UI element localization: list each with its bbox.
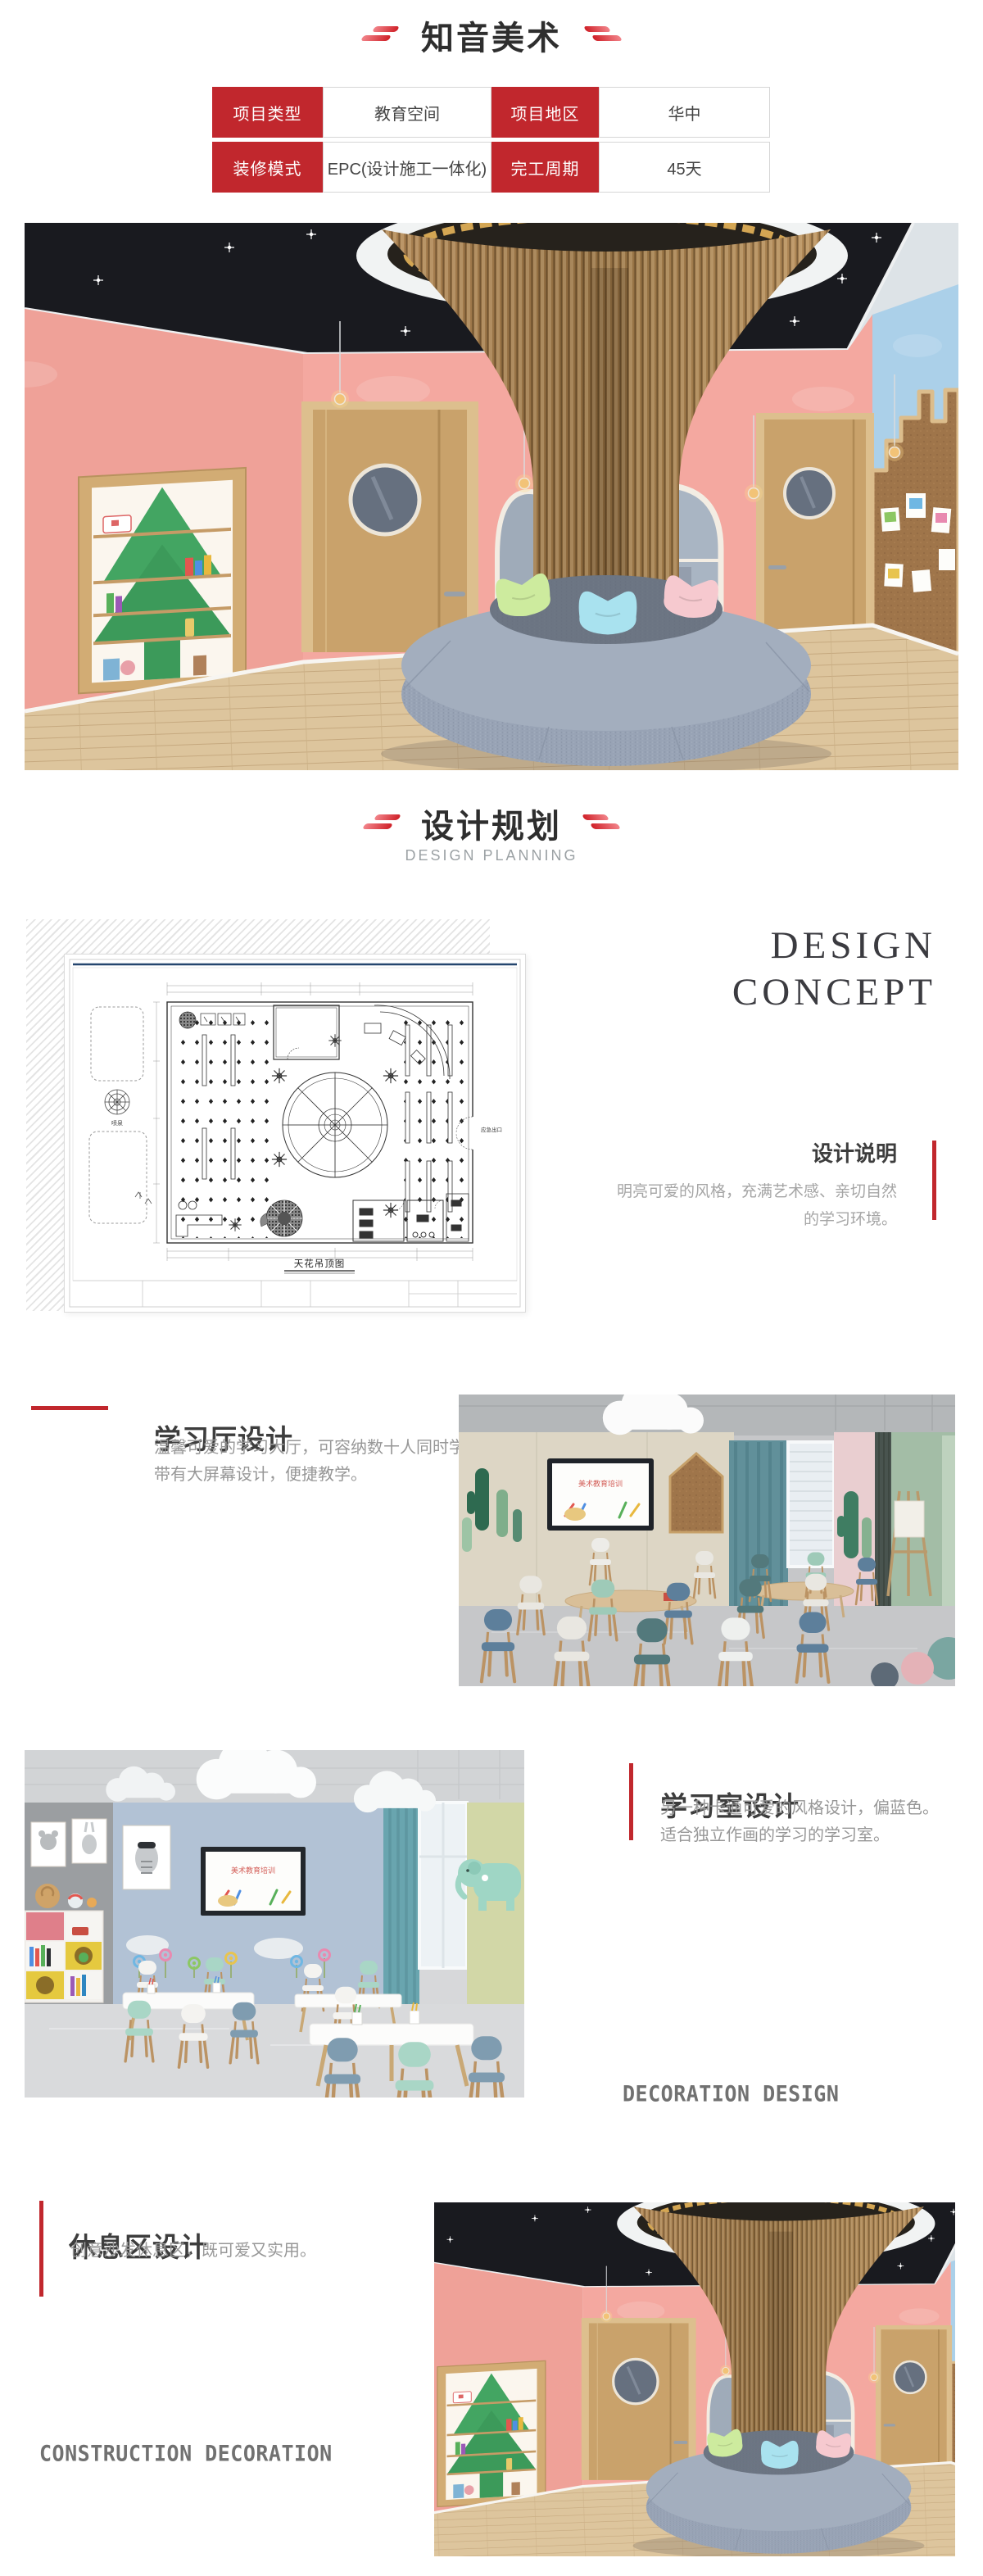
project-info-table: 项目类型 教育空间 项目地区 华中 装修模式 EPC(设计施工一体化) 完工周期… (212, 87, 770, 197)
info-label-project-type: 项目类型 (212, 87, 323, 138)
decoration-design-watermark: DECORATION DESIGN (623, 2081, 839, 2107)
fountain-symbol (105, 1090, 129, 1114)
room-rendering-illustration: 美术教育培训 (25, 1750, 524, 2098)
hero-rendering-image (25, 223, 958, 770)
rest-description: 创意沙发休息区，既可爱又实用。 (70, 2238, 316, 2265)
hero-rendering-illustration (25, 223, 958, 770)
info-value-decoration-mode: EPC(设计施工一体化) (323, 142, 491, 193)
screen-text: 美术教育培训 (231, 1866, 275, 1875)
table-row: 项目类型 教育空间 项目地区 华中 (212, 87, 770, 138)
central-ceiling-wheel (283, 1073, 387, 1177)
plan-caption: 天花吊顶图 (294, 1259, 346, 1269)
fountain-label: 喷泉 (111, 1119, 123, 1127)
info-value-project-type: 教育空间 (323, 87, 491, 138)
door-handle (444, 592, 465, 596)
case-study-page: 知音美术 项目类型 教育空间 项目地区 华中 装修模式 EPC(设计施工一体化)… (0, 0, 983, 2576)
planning-title: 设计规划 (421, 800, 562, 847)
concept-heading-line1: DESIGN (732, 923, 936, 969)
planning-header: 设计规划 (0, 800, 983, 847)
room-screen: 美术教育培训 (201, 1847, 306, 1916)
light-dot-grid (173, 1012, 274, 1238)
concept-heading: DESIGN CONCEPT (732, 923, 936, 1016)
planning-subtitle: DESIGN PLANNING (0, 847, 983, 864)
rest-red-bar (39, 2201, 43, 2297)
concept-section-title: 设计说明 (812, 1137, 897, 1168)
info-value-project-region: 华中 (599, 87, 770, 138)
title-left-accent-icon (362, 24, 401, 47)
concept-description: 明亮可爱的风格，充满艺术感、亲切自然 的学习环境。 (617, 1178, 897, 1234)
info-label-decoration-mode: 装修模式 (212, 142, 323, 193)
rest-rendering-image (434, 2202, 955, 2556)
planning-left-accent-icon (364, 812, 403, 835)
hall-window (788, 1442, 834, 1567)
screen-text: 美术教育培训 (578, 1479, 623, 1488)
info-value-completion-period: 45天 (599, 142, 770, 193)
page-title: 知音美术 (421, 11, 562, 59)
room-desc-line1: 另一种卡通可爱的风格设计，偏蓝色。 (660, 1795, 939, 1822)
room-rendering-image: 美术教育培训 (25, 1750, 524, 2098)
kids-space-scene (25, 223, 958, 770)
hall-rendering-illustration: 美术教育培训 (459, 1395, 955, 1686)
hall-rendering-image: 美术教育培训 (459, 1395, 955, 1686)
room-desc-line2: 适合独立作画的学习的学习室。 (660, 1822, 939, 1849)
planning-right-accent-icon (580, 812, 619, 835)
table-row: 装修模式 EPC(设计施工一体化) 完工周期 45天 (212, 142, 770, 193)
door-handle (768, 565, 786, 569)
concept-desc-line2: 的学习环境。 (617, 1206, 897, 1234)
ceiling-plan-drawing: 喷泉 (65, 955, 525, 1312)
hall-desc-line2: 带有大屏幕设计，便捷教学。 (154, 1462, 498, 1489)
right-door (756, 413, 874, 637)
info-label-completion-period: 完工周期 (491, 142, 599, 193)
pink-ottoman (901, 1652, 934, 1685)
hall-description: 温馨可爱的学习大厅，可容纳数十人同时学习， 带有大屏幕设计，便捷教学。 (154, 1435, 498, 1489)
hall-desc-line1: 温馨可爱的学习大厅，可容纳数十人同时学习， (154, 1435, 498, 1462)
room-description: 另一种卡通可爱的风格设计，偏蓝色。 适合独立作画的学习的学习室。 (660, 1795, 939, 1849)
construction-decoration-watermark: CONSTRUCTION DECORATION (39, 2441, 333, 2466)
page-header: 知音美术 (0, 11, 983, 59)
room-red-bar (629, 1763, 633, 1840)
rest-rendering-illustration (434, 2202, 955, 2556)
room-yellow-wall (467, 1803, 524, 2004)
room-floor (25, 2004, 524, 2098)
concept-red-bar (932, 1141, 936, 1220)
info-label-project-region: 项目地区 (491, 87, 599, 138)
hall-screen: 美术教育培训 (547, 1458, 654, 1531)
title-right-accent-icon (582, 24, 621, 47)
ceiling-plan-sheet: 喷泉 (64, 954, 526, 1313)
exit-label: 应急出口 (481, 1126, 502, 1133)
tree-shelf-niche (79, 468, 246, 693)
hall-red-line (31, 1406, 108, 1410)
left-door (301, 401, 478, 652)
hall-ceiling (459, 1395, 955, 1435)
concept-desc-line1: 明亮可爱的风格，充满艺术感、亲切自然 (617, 1178, 897, 1206)
concept-heading-line2: CONCEPT (732, 969, 936, 1016)
